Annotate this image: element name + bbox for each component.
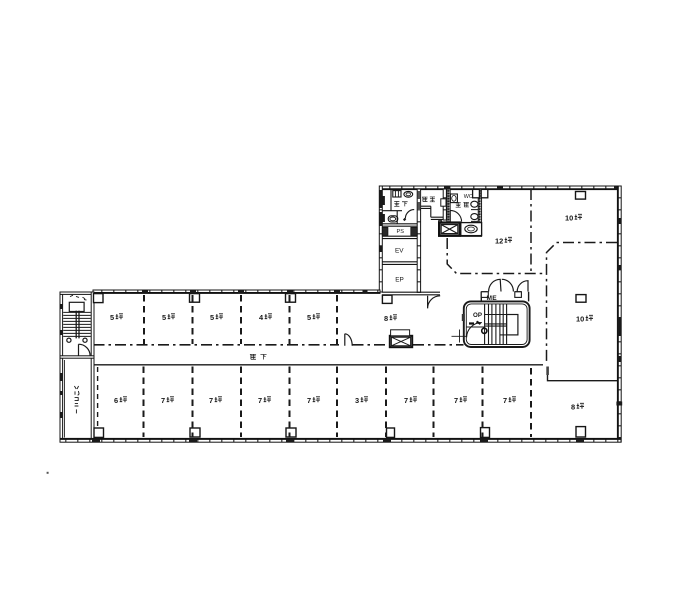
- svg-text:5: 5: [307, 313, 311, 322]
- svg-text:7: 7: [454, 396, 458, 405]
- svg-text:10: 10: [565, 214, 573, 223]
- svg-text:WC: WC: [464, 194, 473, 200]
- svg-text:5: 5: [210, 313, 214, 322]
- svg-text:8: 8: [384, 314, 388, 323]
- svg-text:3: 3: [355, 396, 359, 405]
- svg-text:5: 5: [162, 313, 166, 322]
- svg-text:10: 10: [576, 315, 584, 324]
- svg-text:7: 7: [404, 396, 408, 405]
- svg-text:8: 8: [571, 403, 575, 412]
- svg-text:12: 12: [495, 237, 503, 246]
- svg-text:7: 7: [503, 396, 507, 405]
- svg-text:7: 7: [161, 396, 165, 405]
- svg-text:7: 7: [307, 396, 311, 405]
- svg-text:OP: OP: [473, 312, 482, 319]
- svg-text:7: 7: [209, 396, 213, 405]
- svg-text:ME: ME: [487, 295, 498, 302]
- svg-text:EP: EP: [395, 276, 404, 283]
- svg-text:6: 6: [114, 396, 118, 405]
- svg-text:5: 5: [110, 313, 114, 322]
- svg-text:PS: PS: [397, 229, 405, 235]
- svg-text:EV: EV: [395, 247, 404, 254]
- svg-text:7: 7: [258, 396, 262, 405]
